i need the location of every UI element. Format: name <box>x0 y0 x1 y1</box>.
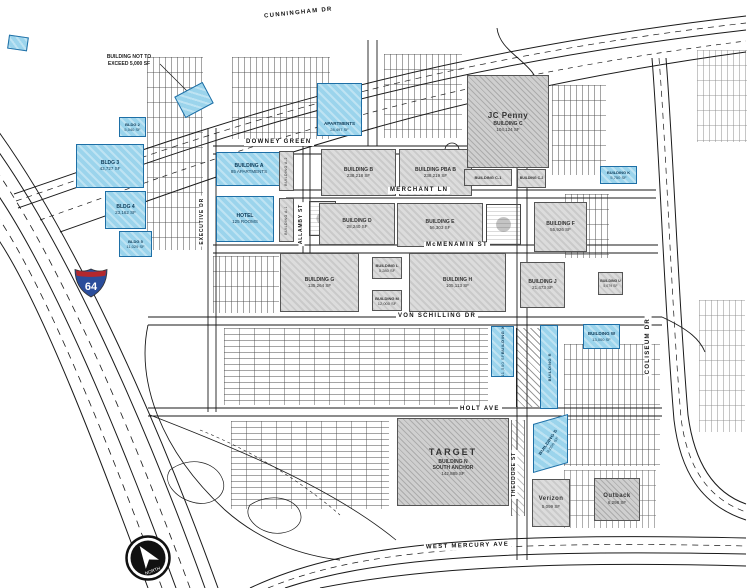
building-size: 5,079 SF <box>603 284 617 288</box>
street-coliseum-dr: COLISEUM DR <box>645 316 652 376</box>
parking-lot <box>213 256 279 313</box>
brand-label: Verizon <box>539 496 564 504</box>
building-size: 238,218 SF <box>347 173 370 179</box>
building-size: 11,500 SF <box>500 354 505 377</box>
building-size: 5,280 SF <box>379 268 395 273</box>
building-size: 55,926 SF <box>550 227 571 233</box>
building-bldg4: BLDG 4 23,162 SF <box>105 191 146 229</box>
building-size: 142,885 SF <box>441 471 464 477</box>
building-label: BUILDING A-1 <box>284 206 288 235</box>
building-size: 28,497 SF <box>330 127 348 132</box>
pedestrian-paseo <box>516 328 541 407</box>
building-size: 5,099 SF <box>542 504 560 510</box>
parking-lot <box>699 300 745 432</box>
street-merchant-ln: MERCHANT LN <box>388 187 450 194</box>
building-bldg5: BLDG 5 11,029 SF <box>119 231 152 257</box>
building-apartments: APARTMENTS 28,497 SF <box>317 83 362 136</box>
parking-lot <box>697 50 747 142</box>
building-outback: Outback 6,298 SF <box>594 478 640 521</box>
building-label: BUILDING R <box>547 353 552 381</box>
building-label: BUILDING C-2 <box>520 176 544 180</box>
garden-plaza <box>486 204 521 245</box>
street-von-schilling-dr: VON SCHILLING DR <box>396 313 478 320</box>
building-jc-penny: JC Penny BUILDING C 104,124 SF <box>467 75 549 168</box>
building-j: BUILDING J 21,473 SF <box>520 262 565 308</box>
building-verizon: Verizon 5,099 SF <box>532 479 570 527</box>
building-x: BUILDING X 11,500 SF <box>491 326 514 377</box>
building-m: BUILDING M 12,000 SF <box>372 290 402 311</box>
building-size: 5,750 SF <box>610 175 626 180</box>
brand-label: TARGET <box>429 447 477 458</box>
building-w: BUILDING W 13,000 SF <box>583 324 620 349</box>
interstate-64-shield: 64 <box>74 268 108 303</box>
building-label: BUILDING C-1 <box>475 175 502 180</box>
street-mcmenamin-st: McMENAMIN ST <box>424 242 490 249</box>
building-label: BUILDING A-2 <box>284 157 288 186</box>
parking-lot <box>384 54 462 138</box>
building-r: BUILDING R <box>540 325 558 409</box>
building-size: 13,000 SF <box>592 337 610 342</box>
street-downey-green: DOWNEY GREEN <box>244 139 314 146</box>
building-label: BUILDING X <box>500 326 505 354</box>
building-size: 6,298 SF <box>608 500 626 506</box>
building-g: BUILDING G 135,264 SF <box>280 253 359 312</box>
building-size: 135,264 SF <box>308 283 331 289</box>
note-line-2: EXCEED 5,000 SF <box>92 61 166 68</box>
building-bldg2: BLDG 2 5,040 SF <box>119 117 146 137</box>
brand-label: Outback <box>603 493 631 501</box>
building-size: 5,040 SF <box>124 127 140 132</box>
site-plan: BLDG 2 5,040 SF BLDG 3 43,727 SF BLDG 4 … <box>0 0 747 588</box>
building-size: 56,303 SF <box>430 225 451 231</box>
building-size: 28,240 SF <box>347 224 368 230</box>
building-d: BUILDING D 28,240 SF <box>319 203 395 245</box>
parking-lot <box>231 421 389 509</box>
building-u: BUILDING U 5,079 SF <box>598 272 623 295</box>
street-holt-ave: HOLT AVE <box>458 406 502 413</box>
building-size: 125 ROOMS <box>232 219 258 225</box>
street-executive-dr: EXECUTIVE DR <box>200 196 206 247</box>
building-size: 23,162 SF <box>115 210 136 216</box>
building-size: 104,124 SF <box>496 127 519 133</box>
building-hotel: HOTEL 125 ROOMS <box>216 196 274 242</box>
building-size: 43,727 SF <box>100 166 121 172</box>
building-pad-topleft <box>7 35 29 52</box>
route-number: 64 <box>85 281 98 293</box>
max-size-annotation: BUILDING NOT TO EXCEED 5,000 SF <box>92 54 166 67</box>
building-c2: BUILDING C-2 <box>517 169 546 188</box>
building-f: BUILDING F 55,926 SF <box>534 202 587 252</box>
building-b: BUILDING B 238,218 SF <box>321 149 396 196</box>
building-size: 21,473 SF <box>532 285 553 291</box>
building-e: BUILDING E 56,303 SF <box>397 203 483 247</box>
building-size: 238,219 SF <box>424 173 447 179</box>
street-allamby-st: ALLAMBY ST <box>299 202 305 246</box>
building-size: 85 APARTMENTS <box>231 169 267 175</box>
building-target: TARGET BUILDING N SOUTH ANCHOR 142,885 S… <box>397 418 509 506</box>
brand-label: JC Penny <box>488 111 528 121</box>
parking-lot <box>224 328 488 405</box>
building-c1: BUILDING C-1 <box>464 169 512 186</box>
parking-lot <box>552 85 606 175</box>
north-arrow-compass: NORTH <box>124 534 172 587</box>
building-size: 105,113 SF <box>446 283 469 289</box>
building-a: BUILDING A 85 APARTMENTS <box>216 152 282 186</box>
building-k: BUILDING K 5,750 SF <box>600 166 637 184</box>
building-size: 11,029 SF <box>126 244 144 249</box>
building-size: 12,000 SF <box>378 301 396 306</box>
building-a1: BUILDING A-1 <box>279 198 294 242</box>
building-s: BUILDING S 9,000 SF <box>533 414 568 473</box>
parking-lot <box>232 57 330 139</box>
building-l: BUILDING L 5,280 SF <box>372 257 402 279</box>
building-a2: BUILDING A-2 <box>279 151 294 191</box>
street-theodore-st: THEODORE ST <box>512 450 518 499</box>
building-bldg3: BLDG 3 43,727 SF <box>76 144 144 188</box>
building-h: BUILDING H 105,113 SF <box>409 253 506 312</box>
